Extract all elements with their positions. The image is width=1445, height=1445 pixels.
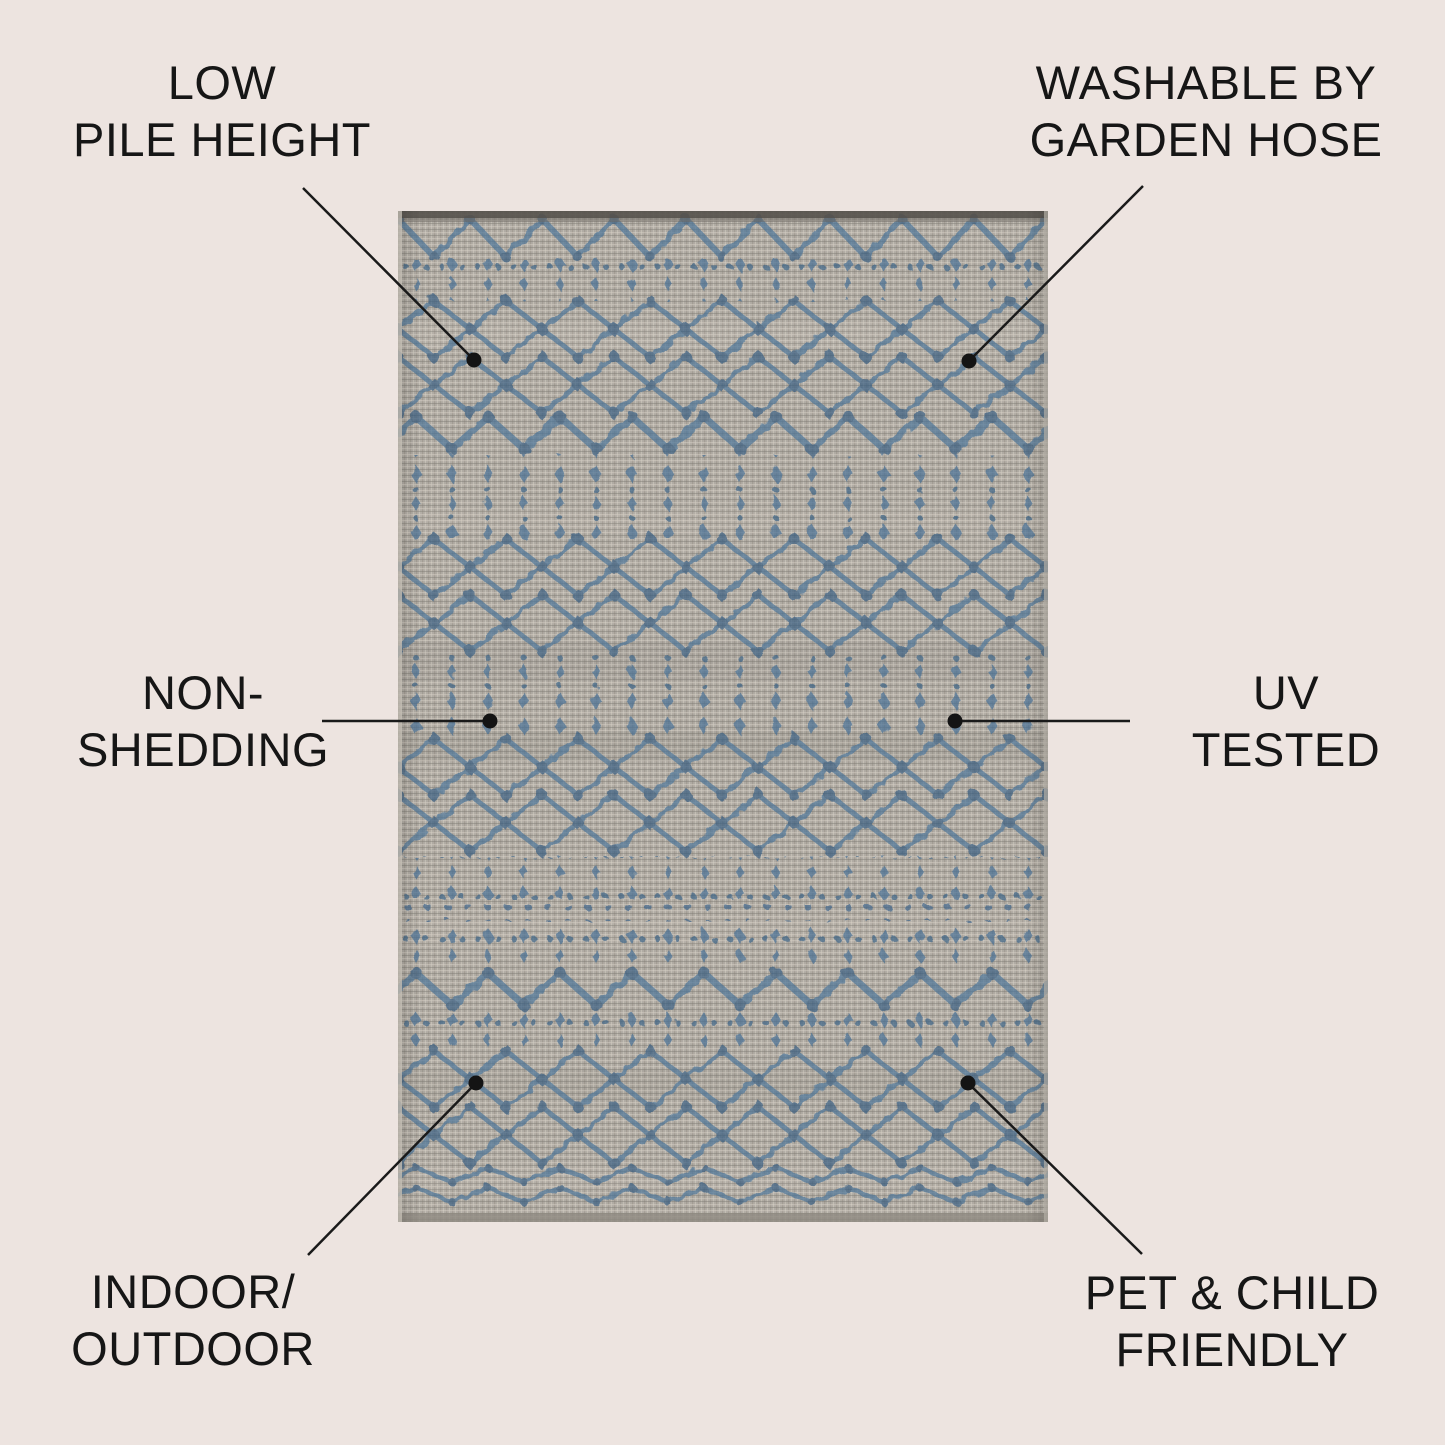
callout-label-low-pile-height: LOW PILE HEIGHT	[73, 54, 371, 168]
callout-text-line: WASHABLE BY	[1030, 54, 1383, 111]
callout-text-line: GARDEN HOSE	[1030, 111, 1383, 168]
callout-text-line: NON-	[77, 664, 329, 721]
product-feature-infographic: LOW PILE HEIGHT WASHABLE BY GARDEN HOSE …	[0, 0, 1445, 1445]
callout-label-indoor-outdoor: INDOOR/ OUTDOOR	[71, 1263, 315, 1377]
callout-text-line: FRIENDLY	[1085, 1321, 1380, 1378]
rug-photo	[398, 211, 1048, 1222]
callout-label-uv-tested: UV TESTED	[1192, 664, 1380, 778]
callout-text-line: PILE HEIGHT	[73, 111, 371, 168]
callout-text-line: OUTDOOR	[71, 1320, 315, 1377]
callout-text-line: UV	[1192, 664, 1380, 721]
callout-text-line: PET & CHILD	[1085, 1264, 1380, 1321]
callout-text-line: LOW	[73, 54, 371, 111]
rug-texture-edges	[398, 211, 1048, 1222]
callout-text-line: TESTED	[1192, 721, 1380, 778]
callout-text-line: SHEDDING	[77, 721, 329, 778]
callout-text-line: INDOOR/	[71, 1263, 315, 1320]
callout-label-pet-child-friendly: PET & CHILD FRIENDLY	[1085, 1264, 1380, 1378]
callout-label-washable-by-garden-hose: WASHABLE BY GARDEN HOSE	[1030, 54, 1383, 168]
callout-label-non-shedding: NON- SHEDDING	[77, 664, 329, 778]
